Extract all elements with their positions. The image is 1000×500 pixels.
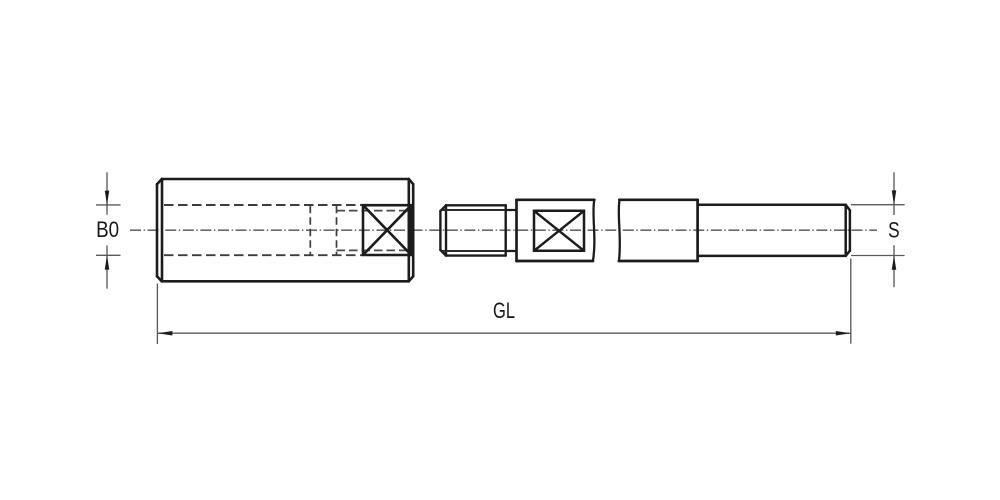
svg-text:B0: B0 — [96, 217, 119, 242]
svg-text:GL: GL — [493, 298, 515, 323]
svg-text:S: S — [888, 218, 900, 243]
